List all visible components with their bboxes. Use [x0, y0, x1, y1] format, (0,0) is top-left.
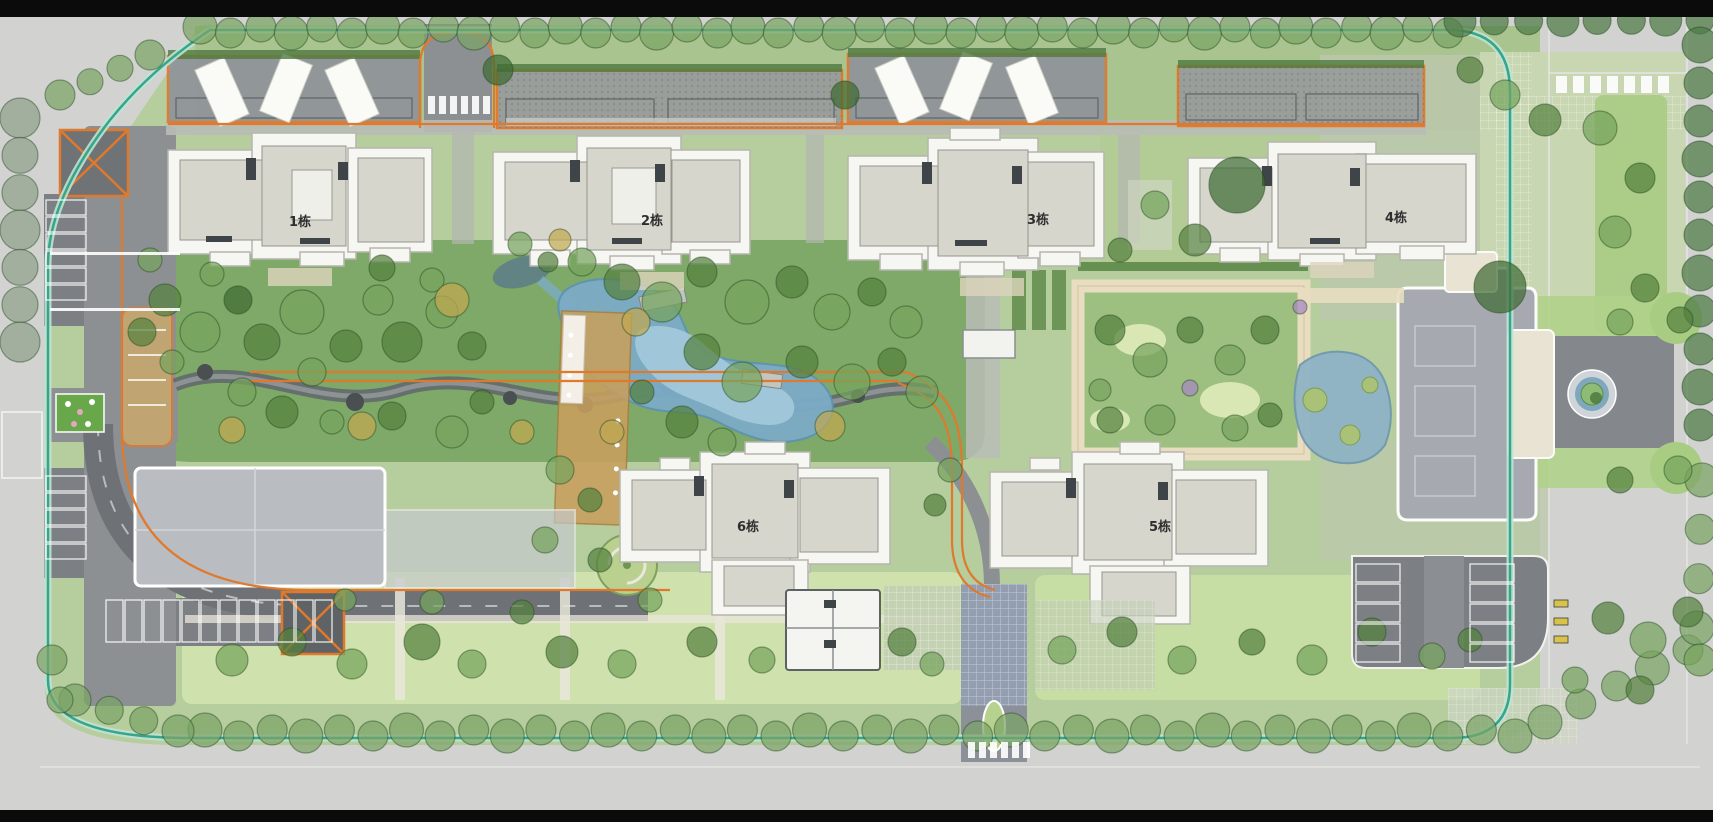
- tree-icon: [266, 396, 298, 428]
- tree-icon: [630, 380, 654, 404]
- tree-icon: [510, 420, 534, 444]
- tree-icon: [666, 406, 698, 438]
- tree-icon: [425, 721, 455, 751]
- crosswalk-bar: [1590, 76, 1601, 93]
- tree-icon: [608, 650, 636, 678]
- tree-icon: [404, 624, 440, 660]
- tree-icon: [1239, 629, 1265, 655]
- tree-icon: [1089, 379, 1111, 401]
- tree-icon: [703, 18, 733, 48]
- tree-icon: [1562, 667, 1588, 693]
- tree-icon: [822, 16, 856, 50]
- crosswalk-bar: [461, 96, 468, 114]
- tree-icon: [107, 55, 133, 81]
- tree-icon: [761, 721, 791, 751]
- tree-icon: [1209, 157, 1265, 213]
- site-plan-viewport: 1栋 2栋 3栋 4栋 5栋 6栋: [0, 0, 1713, 822]
- crosswalk-bar: [1012, 742, 1019, 758]
- tree-icon: [135, 40, 165, 70]
- tree-icon: [95, 696, 123, 724]
- tree-icon: [520, 18, 550, 48]
- tree-icon: [568, 248, 596, 276]
- crosswalk-bar: [968, 742, 975, 758]
- tree-icon: [1131, 715, 1161, 745]
- entrance-fountain: [1568, 370, 1616, 418]
- tree-icon: [560, 721, 590, 751]
- tree-icon: [470, 390, 494, 414]
- crosswalk-bar: [1001, 742, 1008, 758]
- tree-icon: [2, 175, 38, 211]
- tree-icon: [1684, 564, 1713, 594]
- tree-icon: [37, 645, 67, 675]
- commercial-strip-1: [168, 53, 420, 127]
- tree-icon: [1141, 191, 1169, 219]
- tree-icon: [274, 16, 308, 50]
- tree-icon: [776, 266, 808, 298]
- tree-icon: [1673, 597, 1703, 627]
- commercial-strip-3: [848, 51, 1106, 125]
- tree-icon: [1196, 713, 1230, 747]
- tree-icon: [224, 286, 252, 314]
- tree-icon: [224, 721, 254, 751]
- tree-icon: [1631, 274, 1659, 302]
- tree-icon: [549, 229, 571, 251]
- tree-icon: [1684, 409, 1713, 441]
- tree-icon: [378, 402, 406, 430]
- tree-icon: [627, 721, 657, 751]
- tree-icon: [45, 80, 75, 110]
- tree-icon: [228, 378, 256, 406]
- tree-icon: [1397, 713, 1431, 747]
- tree-icon: [1528, 705, 1562, 739]
- tree-icon: [1168, 646, 1196, 674]
- tree-icon: [1684, 181, 1713, 213]
- tree-icon: [546, 636, 578, 668]
- garden-pavilion: [963, 330, 1015, 358]
- tree-icon: [708, 428, 736, 456]
- tree-icon: [725, 280, 769, 324]
- tree-icon: [1250, 18, 1280, 48]
- tree-icon: [1095, 315, 1125, 345]
- tree-icon: [1684, 105, 1713, 137]
- tree-icon: [858, 278, 886, 306]
- tree-icon: [532, 527, 558, 553]
- tree-icon: [1297, 719, 1331, 753]
- tree-icon: [2, 249, 38, 285]
- tree-icon: [1251, 316, 1279, 344]
- tree-icon: [457, 16, 491, 50]
- building-6-label: 6栋: [737, 519, 759, 535]
- tree-icon: [216, 644, 248, 676]
- tree-icon: [1607, 467, 1633, 493]
- garage-ramp: [961, 584, 1027, 706]
- tree-icon: [334, 589, 356, 611]
- tree-icon: [1108, 238, 1132, 262]
- tree-icon: [684, 334, 720, 370]
- tree-icon: [1215, 345, 1245, 375]
- tree-icon: [337, 649, 367, 679]
- tree-icon: [1145, 405, 1175, 435]
- tree-icon: [1498, 719, 1532, 753]
- tree-icon: [149, 284, 181, 316]
- crosswalk-bar: [50, 308, 180, 311]
- tree-icon: [180, 312, 220, 352]
- tree-icon: [1366, 721, 1396, 751]
- tree-icon: [814, 294, 850, 330]
- tree-icon: [1164, 721, 1194, 751]
- tree-icon: [1682, 369, 1713, 405]
- tree-icon: [727, 715, 757, 745]
- tree-icon: [1684, 333, 1713, 365]
- tree-icon: [390, 713, 424, 747]
- tree-icon: [793, 713, 827, 747]
- tree-icon: [348, 412, 376, 440]
- tree-icon: [1419, 643, 1445, 669]
- tree-icon: [660, 715, 690, 745]
- tree-icon: [815, 411, 845, 441]
- tree-icon: [1457, 57, 1483, 83]
- tree-icon: [2, 287, 38, 323]
- tree-icon: [130, 707, 158, 735]
- tree-icon: [1293, 300, 1307, 314]
- tree-icon: [946, 18, 976, 48]
- tree-icon: [435, 283, 469, 317]
- tree-icon: [828, 721, 858, 751]
- tree-icon: [938, 458, 962, 482]
- tree-icon: [600, 420, 624, 444]
- tree-icon: [638, 588, 662, 612]
- tree-icon: [1667, 307, 1693, 333]
- tree-icon: [622, 308, 650, 336]
- tree-icon: [1684, 644, 1713, 676]
- tree-icon: [878, 348, 906, 376]
- tree-icon: [831, 81, 859, 109]
- crosswalk-bar: [1573, 76, 1584, 93]
- tree-icon: [834, 364, 870, 400]
- tree-icon: [1095, 719, 1129, 753]
- tree-icon: [1682, 255, 1713, 291]
- tree-icon: [1625, 163, 1655, 193]
- tree-icon: [0, 98, 40, 138]
- tree-icon: [893, 719, 927, 753]
- tree-icon: [458, 332, 486, 360]
- tree-icon: [459, 715, 489, 745]
- tree-icon: [1107, 617, 1137, 647]
- site-plan-drawing: 1栋 2栋 3栋 4栋 5栋 6栋: [0, 0, 1713, 822]
- tree-icon: [436, 416, 468, 448]
- top-frame-bar: [0, 0, 1713, 17]
- tree-icon: [162, 715, 194, 747]
- crosswalk-bar: [483, 96, 490, 114]
- crosswalk-bar: [1624, 76, 1635, 93]
- tree-icon: [1265, 715, 1295, 745]
- tree-icon: [289, 719, 323, 753]
- tree-icon: [920, 652, 944, 676]
- tree-icon: [1258, 403, 1282, 427]
- tree-icon: [546, 456, 574, 484]
- tree-icon: [1592, 602, 1624, 634]
- tree-icon: [2, 137, 38, 173]
- tree-icon: [1177, 317, 1203, 343]
- tree-icon: [280, 290, 324, 334]
- crosswalk-bar: [439, 96, 446, 114]
- tree-icon: [929, 715, 959, 745]
- building-5-label: 5栋: [1149, 519, 1171, 535]
- tree-icon: [1332, 715, 1362, 745]
- tree-icon: [1599, 216, 1631, 248]
- tree-icon: [1297, 645, 1327, 675]
- tree-icon: [1474, 261, 1526, 313]
- tree-icon: [687, 257, 717, 287]
- crosswalk-bar: [1556, 76, 1567, 93]
- tree-icon: [257, 715, 287, 745]
- crosswalk-bar: [472, 96, 479, 114]
- tree-icon: [420, 590, 444, 614]
- tree-icon: [1311, 18, 1341, 48]
- tree-icon: [369, 255, 395, 281]
- crosswalk-bar: [1023, 742, 1030, 758]
- crosswalk-bar: [990, 742, 997, 758]
- crosswalk-bar: [979, 742, 986, 758]
- tree-icon: [1063, 715, 1093, 745]
- tree-icon: [363, 285, 393, 315]
- tree-icon: [398, 18, 428, 48]
- tree-icon: [786, 346, 818, 378]
- crosswalk-bar: [1658, 76, 1669, 93]
- tree-icon: [510, 600, 534, 624]
- crosswalk-bar: [450, 96, 457, 114]
- tree-icon: [1630, 622, 1666, 658]
- commercial-strip-2: [497, 70, 842, 128]
- crosswalk-bar: [50, 252, 180, 255]
- tree-icon: [47, 687, 73, 713]
- crosswalk-bar: [1607, 76, 1618, 93]
- civic-annex: [1508, 330, 1554, 458]
- building-4-label: 4栋: [1385, 210, 1407, 226]
- podium-building: [135, 468, 385, 586]
- tree-icon: [1626, 676, 1654, 704]
- tree-icon: [1682, 27, 1713, 63]
- tree-icon: [581, 18, 611, 48]
- pergola: [561, 315, 586, 404]
- tree-icon: [963, 721, 993, 751]
- tree-icon: [591, 713, 625, 747]
- tree-icon: [1529, 104, 1561, 136]
- tree-icon: [692, 719, 726, 753]
- tree-icon: [640, 16, 674, 50]
- tree-icon: [862, 715, 892, 745]
- building-1-label: 1栋: [289, 214, 311, 230]
- tree-icon: [722, 362, 762, 402]
- tree-icon: [1607, 309, 1633, 335]
- tree-icon: [749, 647, 775, 673]
- tree-icon: [200, 262, 224, 286]
- tree-icon: [483, 55, 513, 85]
- planted-median: [56, 394, 104, 432]
- tree-icon: [219, 417, 245, 443]
- tree-icon: [1433, 721, 1463, 751]
- tree-icon: [1005, 16, 1039, 50]
- tree-icon: [358, 721, 388, 751]
- tree-icon: [1466, 715, 1496, 745]
- tree-icon: [604, 264, 640, 300]
- tree-icon: [160, 350, 184, 374]
- tree-icon: [1068, 18, 1098, 48]
- tree-icon: [1188, 16, 1222, 50]
- tree-icon: [885, 18, 915, 48]
- tree-icon: [1684, 67, 1713, 99]
- tree-icon: [687, 627, 717, 657]
- bottom-frame-bar: [0, 810, 1713, 822]
- tree-icon: [890, 306, 922, 338]
- tree-icon: [0, 322, 40, 362]
- tree-icon: [538, 252, 558, 272]
- tree-icon: [330, 330, 362, 362]
- tree-icon: [382, 322, 422, 362]
- tree-icon: [508, 232, 532, 256]
- tree-icon: [77, 69, 103, 95]
- tree-icon: [0, 210, 40, 250]
- tree-icon: [1490, 80, 1520, 110]
- tree-icon: [1129, 18, 1159, 48]
- clubhouse-building: [786, 590, 880, 670]
- tree-icon: [244, 324, 280, 360]
- tree-icon: [1682, 141, 1713, 177]
- tree-icon: [588, 548, 612, 572]
- tree-icon: [578, 488, 602, 512]
- building-1: [168, 133, 432, 266]
- tree-icon: [1231, 721, 1261, 751]
- tree-icon: [1182, 380, 1198, 396]
- tree-icon: [1222, 415, 1248, 441]
- tree-icon: [298, 358, 326, 386]
- tree-icon: [1685, 514, 1713, 544]
- tree-icon: [1097, 407, 1123, 433]
- tree-icon: [1133, 343, 1167, 377]
- tree-icon: [1048, 636, 1076, 664]
- tree-icon: [320, 410, 344, 434]
- tree-icon: [763, 18, 793, 48]
- tree-icon: [458, 650, 486, 678]
- building-3-label: 3栋: [1027, 212, 1049, 228]
- tree-icon: [1030, 721, 1060, 751]
- tree-icon: [490, 719, 524, 753]
- crosswalk-bar: [1641, 76, 1652, 93]
- tree-icon: [888, 628, 916, 656]
- tree-icon: [526, 715, 556, 745]
- tree-icon: [1684, 219, 1713, 251]
- commercial-strip-4: [1178, 66, 1424, 126]
- crosswalk-bar: [428, 96, 435, 114]
- tree-icon: [337, 18, 367, 48]
- tree-icon: [994, 713, 1028, 747]
- tree-icon: [924, 494, 946, 516]
- tree-icon: [906, 376, 938, 408]
- tree-icon: [1370, 16, 1404, 50]
- tree-icon: [1583, 111, 1617, 145]
- tree-icon: [215, 18, 245, 48]
- building-2-label: 2栋: [641, 213, 663, 229]
- tree-icon: [138, 248, 162, 272]
- tree-icon: [1566, 689, 1596, 719]
- tree-icon: [1664, 456, 1692, 484]
- building-2: [493, 136, 750, 270]
- tree-icon: [128, 318, 156, 346]
- tree-icon: [1179, 224, 1211, 256]
- tree-icon: [324, 715, 354, 745]
